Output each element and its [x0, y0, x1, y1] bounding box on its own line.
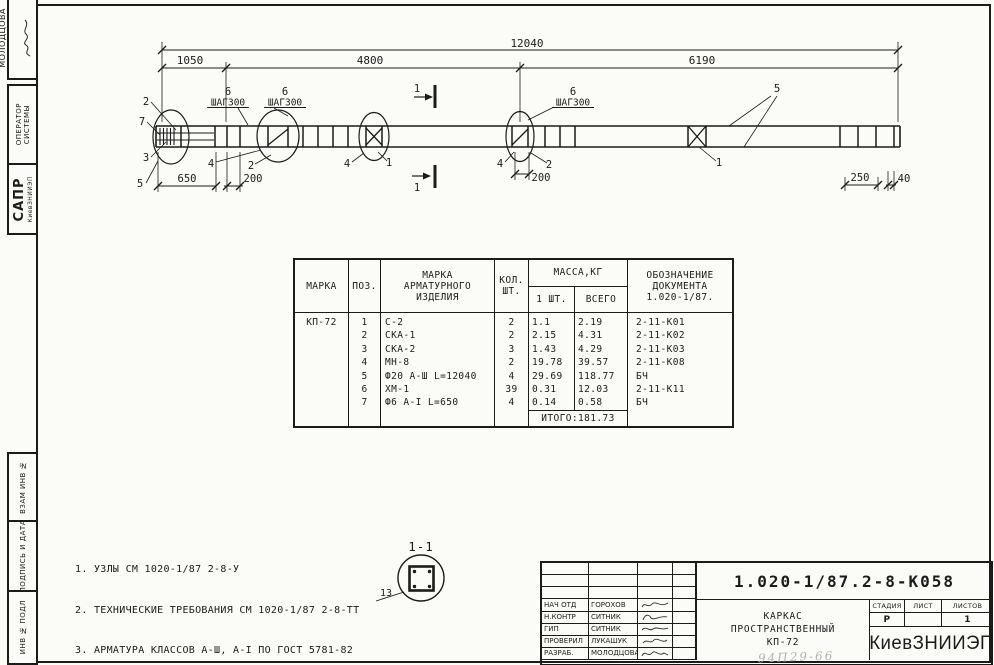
sheets-value: 1	[942, 613, 993, 626]
callout-1b: 1	[386, 157, 392, 169]
callout-5-left: 5	[137, 178, 143, 190]
callout-3: 3	[143, 152, 149, 164]
section-mark-bottom: 1	[414, 182, 420, 194]
note-2: 2. ТЕХНИЧЕСКИЕ ТРЕБОВАНИЯ СМ 1020-1/87 2…	[75, 604, 359, 618]
col-header-qty: КОЛ. ШТ.	[495, 260, 529, 312]
signature	[638, 624, 673, 636]
callout-4c: 4	[497, 158, 503, 170]
stage-sheet-grid: СТАДИЯ ЛИСТ ЛИСТОВ Р 1 КиевЗНИИЭП	[869, 599, 993, 660]
dim-200-mid: 200	[532, 172, 551, 184]
callout-5-right: 5	[774, 82, 781, 95]
col-qty: 2 2 3 2 4 39 4	[495, 313, 529, 410]
total-mass: ИТОГО:181.73	[529, 410, 628, 426]
stage-value: Р	[870, 613, 905, 626]
role-name: СИТНИК	[589, 624, 638, 636]
dim-650: 650	[178, 173, 197, 185]
col-header-mass-each: 1 ШТ.	[529, 287, 575, 313]
table-body: КП-72 1 2 3 4 5 6 7 С-2 СКА-1 СКА-2 МН-8…	[295, 313, 732, 410]
section-cut-marks	[412, 85, 435, 188]
callout-2c: 2	[546, 159, 552, 171]
document-number: 1.020-1/87.2-8-К058	[697, 563, 992, 600]
note-3: 3. АРМАТУРА КЛАССОВ А-Ш, А-I ПО ГОСТ 578…	[75, 644, 359, 658]
callout-2: 2	[143, 96, 149, 108]
section-mark-top: 1	[414, 83, 420, 95]
pencil-note: 94П29-66	[758, 649, 835, 665]
title-block-signatures: НАЧ ОТД ГОРОХОВ Н.КОНТР СИТНИК ГИП СИТНИ…	[542, 563, 696, 660]
dimension-lines	[158, 50, 898, 186]
callout-4a: 4	[208, 158, 214, 170]
col-header-item: МАРКА АРМАТУРНОГО ИЗДЕЛИЯ	[381, 260, 495, 312]
callout-4b: 4	[344, 158, 350, 170]
role-label: ПРОВЕРИЛ	[542, 636, 589, 648]
col-marka: КП-72	[295, 313, 349, 410]
rebar-specification-table: МАРКА ПОЗ. МАРКА АРМАТУРНОГО ИЗДЕЛИЯ КОЛ…	[293, 258, 734, 428]
dim-seg1: 1050	[177, 54, 204, 67]
role-label: РАЗРАБ.	[542, 648, 589, 660]
general-notes: 1. УЗЛЫ СМ 1020-1/87 2-8-У 2. ТЕХНИЧЕСКИ…	[75, 536, 359, 665]
note-1: 1. УЗЛЫ СМ 1020-1/87 2-8-У	[75, 563, 359, 577]
role-name: ЛУКАШУК	[589, 636, 638, 648]
callout-2a: 2	[248, 160, 254, 172]
sheets-label: ЛИСТОВ	[942, 599, 993, 612]
title-block: НАЧ ОТД ГОРОХОВ Н.КОНТР СИТНИК ГИП СИТНИ…	[540, 561, 993, 665]
callout-13: 13	[380, 588, 392, 599]
role-name: СИТНИК	[589, 612, 638, 624]
dim-40: 40	[898, 173, 911, 185]
callout-1d: 1	[716, 157, 722, 169]
role-name: ГОРОХОВ	[589, 599, 638, 611]
col-header-doc: ОБОЗНАЧЕНИЕ ДОКУМЕНТА 1.020-1/87.	[628, 260, 732, 312]
col-header-mass: МАССА,КГ	[529, 260, 628, 287]
signature	[638, 648, 673, 660]
section-title: 1-1	[408, 539, 434, 554]
col-mass-each: 1.1 2.15 1.43 19.78 29.69 0.31 0.14	[529, 313, 575, 410]
role-label: Н.КОНТР	[542, 612, 589, 624]
lap-bars	[157, 133, 214, 140]
col-poz: 1 2 3 4 5 6 7	[349, 313, 381, 410]
shag300-label-c: ШАГ300	[556, 98, 591, 109]
col-header-marka: МАРКА	[295, 260, 349, 312]
signature	[638, 636, 673, 648]
dim-seg3: 6190	[689, 54, 716, 67]
role-label: ГИП	[542, 624, 589, 636]
dim-total: 12040	[510, 37, 543, 50]
table-total-row: ИТОГО:181.73	[295, 410, 732, 426]
dim-250: 250	[851, 172, 870, 184]
sheet-value	[905, 613, 942, 626]
callout-6c: 6	[570, 86, 576, 98]
signature	[638, 599, 673, 611]
col-mass-total: 2.19 4.31 4.29 39.57 118.77 12.03 0.58	[575, 313, 628, 410]
col-item: С-2 СКА-1 СКА-2 МН-8 Ф20 А-Ш L=12040 ХМ-…	[381, 313, 495, 410]
drawing-sheet: МОЛОДЦОВА ОПЕРАТОР СИСТЕМЫ САПР КиевЗНИИ…	[0, 0, 994, 665]
signature	[638, 612, 673, 624]
dim-200-left: 200	[244, 173, 263, 185]
callout-6b: 6	[282, 86, 288, 98]
dimension-labels: 12040 1050 4800 6190 650 200 200 250 40	[177, 37, 911, 185]
dim-seg2: 4800	[357, 54, 384, 67]
role-name: МОЛОДЦОВА	[589, 648, 638, 660]
callout-7: 7	[139, 116, 145, 128]
role-label: НАЧ ОТД	[542, 599, 589, 611]
mark-value: КП-72	[295, 316, 348, 329]
callout-6a: 6	[225, 86, 231, 98]
detail-ovals	[153, 110, 534, 164]
col-header-mass-total: ВСЕГО	[575, 287, 628, 313]
shag300-label-a: ШАГ300	[211, 98, 246, 109]
extension-lines	[158, 42, 898, 192]
end-stirrup-hatch	[160, 128, 174, 145]
col-header-poz: ПОЗ.	[349, 260, 381, 312]
col-doc: 2-11-К01 2-11-К02 2-11-К03 2-11-К08 БЧ 2…	[628, 313, 732, 410]
shag300-label-b: ШАГ300	[268, 98, 303, 109]
sheet-label: ЛИСТ	[905, 599, 942, 612]
table-header: МАРКА ПОЗ. МАРКА АРМАТУРНОГО ИЗДЕЛИЯ КОЛ…	[295, 260, 732, 313]
title-block-main: 1.020-1/87.2-8-К058 КАРКАС ПРОСТРАНСТВЕН…	[696, 563, 992, 660]
organization-name: КиевЗНИИЭП	[871, 627, 992, 660]
stage-label: СТАДИЯ	[870, 599, 905, 612]
